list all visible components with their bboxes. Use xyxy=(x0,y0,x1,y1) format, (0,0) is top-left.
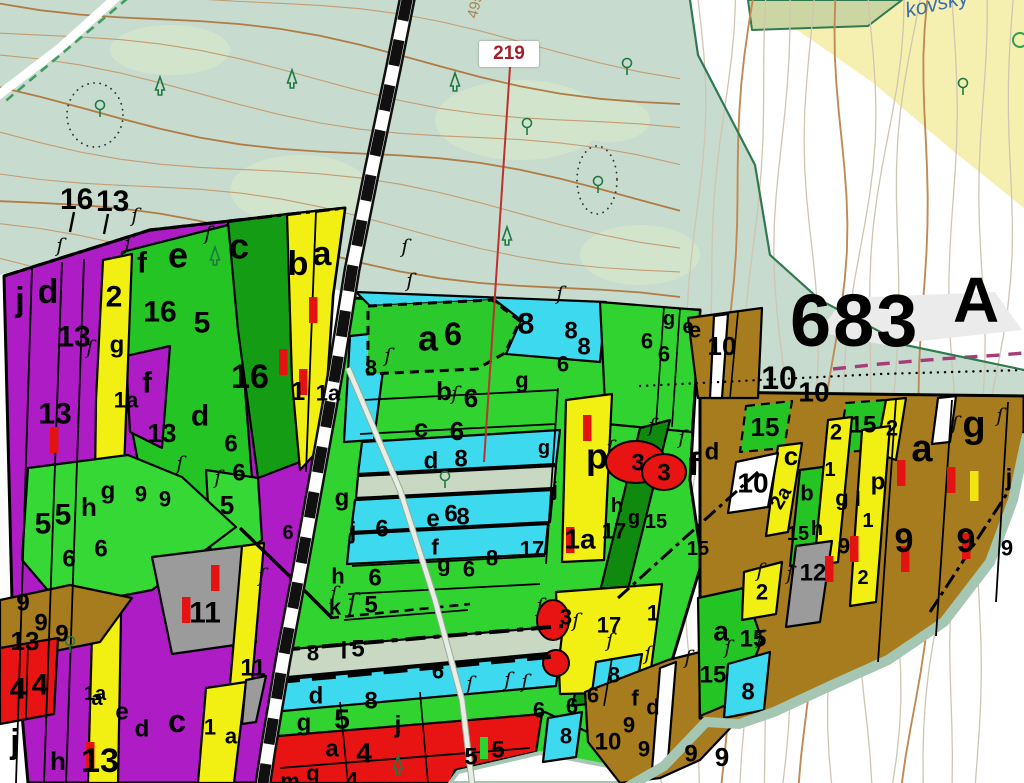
parcel-label: 5 xyxy=(351,636,364,663)
parcel-label: j xyxy=(9,723,19,761)
parcel-label: 9 xyxy=(684,741,697,768)
parcel-label: e xyxy=(689,318,701,343)
parcel-label: 6 xyxy=(463,557,475,582)
parcel-label: 6 xyxy=(533,698,545,723)
parcel-label: 6 xyxy=(282,522,293,544)
parcel-label: b xyxy=(436,376,452,406)
parcel-label: 4 xyxy=(356,738,372,769)
parcel-label: 6 xyxy=(62,546,75,573)
parcel-label: a xyxy=(911,428,933,470)
parcel-label: d xyxy=(191,400,209,433)
parcel-label: 3 xyxy=(560,605,572,630)
parcel-label: f xyxy=(689,446,700,482)
parcel-label: 9 xyxy=(895,522,914,560)
parcel-label: 1 xyxy=(862,510,873,532)
parcel-label: 8 xyxy=(456,504,469,531)
parcel-label: d xyxy=(38,273,59,311)
parcel-label: 5 xyxy=(194,307,211,340)
parcel-label: 1a xyxy=(316,381,341,406)
parcel-label: 1 xyxy=(291,376,305,406)
red-marker-bar xyxy=(279,349,288,375)
parcel-label: g xyxy=(306,761,319,783)
parcel-label: h xyxy=(50,746,66,776)
parcel-label: e xyxy=(426,506,439,533)
parcel-label: 6 xyxy=(375,516,388,543)
parcel-label: 6 xyxy=(94,536,107,563)
parcel-label: 10 xyxy=(798,377,829,408)
parcel-label: 9 xyxy=(159,487,171,512)
stand-section: A xyxy=(953,263,999,337)
parcel-label: d xyxy=(705,439,720,466)
parcel-label: 5 xyxy=(464,744,477,771)
parcel-label: 6 xyxy=(444,501,457,528)
parcel-label: 1a xyxy=(114,388,139,413)
parcel-label: 9 xyxy=(55,621,68,648)
parcel-label: k xyxy=(329,595,342,620)
parcel-label: 6 xyxy=(444,316,462,352)
parcel-label: 6 xyxy=(450,416,464,446)
parcel-label: 9 xyxy=(715,742,729,772)
parcel-label: 2 xyxy=(756,580,768,605)
parcel-label: 6 xyxy=(232,460,245,487)
red-marker-bar xyxy=(50,427,59,453)
parcel-label: 8 xyxy=(560,724,572,749)
parcel-label: 5 xyxy=(334,704,350,735)
parcel-label: 8 xyxy=(564,318,577,345)
parcel-label: 2 xyxy=(886,416,898,441)
parcel-label: b xyxy=(288,245,309,283)
parcel-label: 6 xyxy=(464,383,478,413)
yellow-marker-bar xyxy=(970,471,979,501)
parcel-label: 6 xyxy=(587,683,599,708)
parcel-label: 5 xyxy=(55,499,72,532)
parcel-label: j xyxy=(349,518,357,545)
parcel-label: j xyxy=(551,479,558,501)
parcel-label: e xyxy=(168,235,188,276)
parcel-label: g xyxy=(538,437,550,459)
parcel-label: 17 xyxy=(597,613,621,638)
parcel-label: 8 xyxy=(454,446,467,473)
red-marker-bar xyxy=(309,297,318,323)
parcel-label: g xyxy=(335,485,350,512)
parcel-label: 9 xyxy=(638,737,650,762)
parcel-label: 10 xyxy=(708,331,737,361)
parcel-label: j xyxy=(1005,465,1013,492)
parcel-label: a xyxy=(225,724,238,749)
forest-patch xyxy=(570,98,650,142)
parcel-label: 11 xyxy=(189,597,221,630)
parcel-label: b xyxy=(800,481,813,506)
parcel-label: 8 xyxy=(364,688,377,715)
parcel-label: h xyxy=(811,518,823,540)
parcel-label: 5 xyxy=(35,508,52,541)
parcel-label: 2 xyxy=(857,567,868,589)
parcel-label: f xyxy=(142,367,153,400)
parcel-label: 8 xyxy=(486,546,498,571)
red-marker-bar xyxy=(947,467,956,493)
parcel-label: 1 xyxy=(647,601,659,626)
parcel-label: j xyxy=(14,281,24,319)
parcel-label: 10 xyxy=(761,360,797,396)
parcel-label: g xyxy=(835,486,848,511)
parcel-label: 3 xyxy=(631,450,644,477)
parcel-label: a xyxy=(313,235,333,273)
red-marker-bar xyxy=(850,536,859,562)
callout-219[interactable]: 219 xyxy=(479,41,539,67)
parcel-label: h xyxy=(81,492,97,522)
parcel-label: m xyxy=(280,769,300,783)
parcel-red[interactable] xyxy=(543,650,569,676)
parcel-label: 15 xyxy=(687,538,709,560)
parcel-label: p xyxy=(871,469,886,496)
parcel-label: 9 xyxy=(838,534,850,559)
parcel-label: 9 xyxy=(623,713,635,738)
red-marker-bar xyxy=(211,565,220,591)
parcel-label: c xyxy=(168,703,186,739)
parcel-label: 15 xyxy=(751,412,780,442)
parcel-label: c xyxy=(414,413,428,443)
forest-patch xyxy=(110,25,230,75)
parcel-label: 10 xyxy=(595,729,622,756)
stand-number: 683 xyxy=(790,278,919,363)
parcel-label: g xyxy=(515,368,528,393)
parcel-label: 13 xyxy=(38,398,71,431)
parcel-label: 6 xyxy=(641,329,653,354)
parcel-label: 16 xyxy=(231,358,269,396)
parcel-label: 15 xyxy=(740,626,767,653)
green-marker-bar xyxy=(480,737,488,759)
parcel-label: 6 xyxy=(658,342,670,367)
parcel-label: 13 xyxy=(57,321,90,354)
parcel-label: g xyxy=(110,332,125,359)
parcel-label: 1 xyxy=(204,715,216,740)
parcel-label: p xyxy=(586,436,608,477)
red-marker-bar xyxy=(897,460,906,486)
parcel-label: 9 xyxy=(135,482,147,507)
parcel-label: 4 xyxy=(10,673,27,706)
parcel-label: l xyxy=(855,489,861,511)
parcel-label: 15 xyxy=(645,511,667,533)
parcel-label: 9 xyxy=(16,590,29,617)
parcel-label: 4 xyxy=(346,768,359,783)
parcel-label: h xyxy=(611,495,623,517)
parcel-label: 8 xyxy=(741,679,754,706)
parcel-label: g xyxy=(101,478,116,505)
parcel-label: a xyxy=(713,616,729,647)
parcel-label: h xyxy=(331,564,344,589)
parcel-label: 13 xyxy=(148,418,177,448)
parcel-label: 5 xyxy=(220,490,234,520)
map-canvas[interactable]: ſſſſſſſſſſſſſſſſſſſſſſſſſſſſſſſſjd13132g… xyxy=(0,0,1024,783)
parcel-label: g xyxy=(628,507,640,529)
parcel-label: g xyxy=(962,404,985,446)
forestry-stand-map[interactable]: ſſſſſſſſſſſſſſſſſſſſſſſſſſſſſſſſjd13132g… xyxy=(0,0,1024,783)
parcel-label: 15 xyxy=(850,412,877,439)
parcel-label: d xyxy=(135,716,150,743)
parcel-label: c xyxy=(784,441,798,471)
parcel-label: 8 xyxy=(518,308,535,341)
parcel-label: 11 xyxy=(240,655,265,682)
parcel-tick-label-13: 13 xyxy=(96,185,129,219)
parcel-label: 8 xyxy=(577,334,590,361)
parcel-label: 1a xyxy=(564,524,596,555)
parcel-label: 13 xyxy=(81,742,119,780)
parcel-label: 10 xyxy=(737,468,768,499)
parcel-label: d xyxy=(309,683,324,710)
parcel-label: 9 xyxy=(957,522,976,560)
parcel-label: g xyxy=(663,308,675,330)
parcel-label: 17 xyxy=(520,537,544,562)
parcel-label: 4 xyxy=(32,669,49,702)
parcel-label: d xyxy=(646,695,659,720)
parcel-label: e xyxy=(115,699,128,726)
parcel-label: d xyxy=(424,448,439,475)
parcel-label: 5 xyxy=(491,737,504,764)
parcel-label: 8 xyxy=(365,356,377,381)
parcel-label: 6 xyxy=(368,565,381,592)
parcel-label: a xyxy=(418,318,439,359)
parcel-label: 13 xyxy=(11,626,40,656)
parcel-label: a xyxy=(91,688,103,710)
parcel-label: 8 xyxy=(608,663,620,688)
parcel-label: j xyxy=(394,712,402,739)
parcel-label: l xyxy=(341,638,348,665)
parcel-label: 6 xyxy=(224,431,237,458)
parcel-label: 6 xyxy=(557,352,569,377)
parcel-label: c xyxy=(229,226,249,267)
parcel-label: 8 xyxy=(307,641,319,666)
parcel-label: 5 xyxy=(364,592,377,619)
parcel-label: 6 xyxy=(432,659,444,684)
parcel-label: 16 xyxy=(143,296,176,329)
parcel-label: 9 xyxy=(1001,536,1013,561)
parcel-label: 15 xyxy=(787,523,809,545)
parcel-label: 17 xyxy=(602,519,626,544)
parcel-label: 3 xyxy=(657,460,670,487)
parcel-tick-label-16: 16 xyxy=(60,183,93,217)
parcel-label: 6 xyxy=(566,694,578,719)
parcel-label: 15 xyxy=(700,662,727,689)
parcel-label: g xyxy=(297,710,312,737)
parcel-label: f xyxy=(631,686,639,711)
parcel-label: a xyxy=(325,736,339,763)
parcel-label: g xyxy=(437,552,450,577)
parcel-label: 2 xyxy=(106,281,123,314)
parcel-label: 12 xyxy=(800,560,827,587)
parcel-label: 1 xyxy=(824,459,835,481)
parcel-label: 2 xyxy=(830,420,842,445)
parcel-label: f xyxy=(137,247,148,280)
